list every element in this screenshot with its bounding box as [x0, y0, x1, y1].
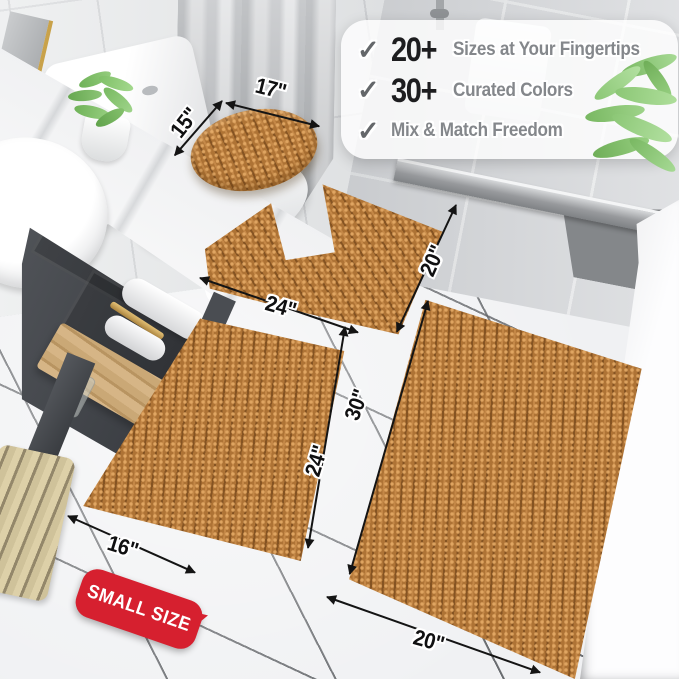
- plant-leaf: [68, 89, 103, 103]
- checkmark-icon: ✓: [357, 37, 391, 64]
- feature-stat: 20+: [391, 33, 444, 67]
- counter-plant: [60, 68, 144, 138]
- shower-bar-bracket: [430, 9, 449, 18]
- corner-plant: [580, 48, 679, 178]
- feature-stat: 30+: [391, 74, 444, 108]
- bathroom-product-scene: 17" 15" 24" 20" 16" 24" 30" 20" ✓ 20+ Si…: [0, 0, 679, 679]
- checkmark-icon: ✓: [357, 77, 391, 104]
- checkmark-icon: ✓: [357, 118, 391, 145]
